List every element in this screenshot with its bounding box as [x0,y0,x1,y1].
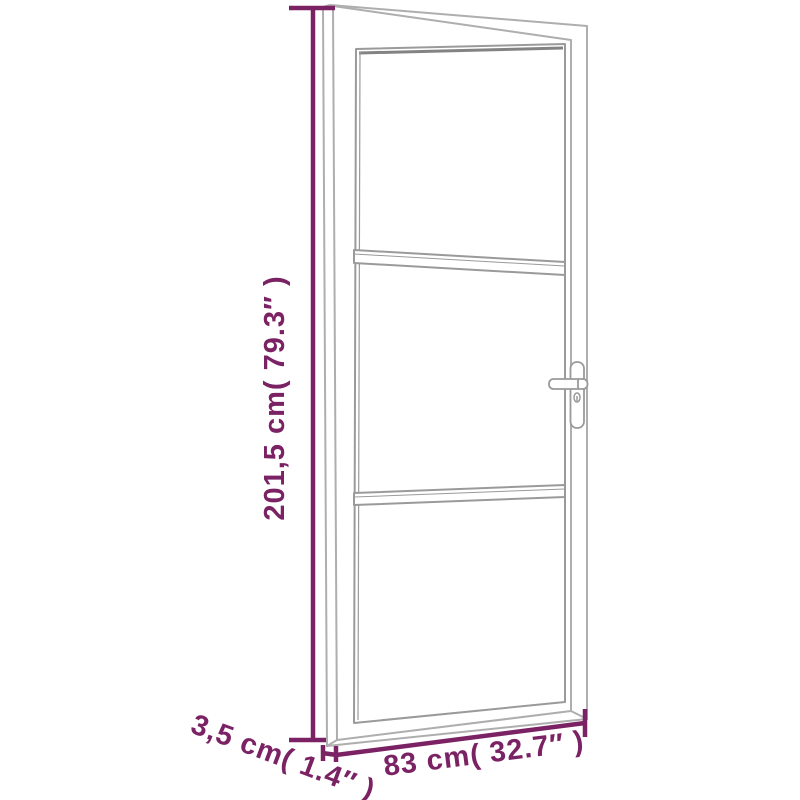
door-back-face-edges [323,5,587,746]
depth-dimension-line [322,753,337,755]
glass-rebate-left [358,52,360,720]
height-dimension-label: 201,5 cm( 79.3″ ) [259,275,291,520]
glass-frame [354,44,565,723]
handle-escutcheon-plate [571,362,585,428]
door-handle [549,362,588,428]
door-outline [323,5,587,746]
product-dimension-diagram: 201,5 cm( 79.3″ ) 83 cm( 32.7″ ) 3,5 cm(… [0,0,800,800]
muntin-bar-lower [354,485,565,505]
glass-panels [354,44,565,723]
door-diagram-svg: 201,5 cm( 79.3″ ) 83 cm( 32.7″ ) 3,5 cm(… [0,0,800,800]
muntin-bar-upper [354,250,565,275]
door-front-face-edges [333,6,571,740]
handle-lever [549,379,588,389]
